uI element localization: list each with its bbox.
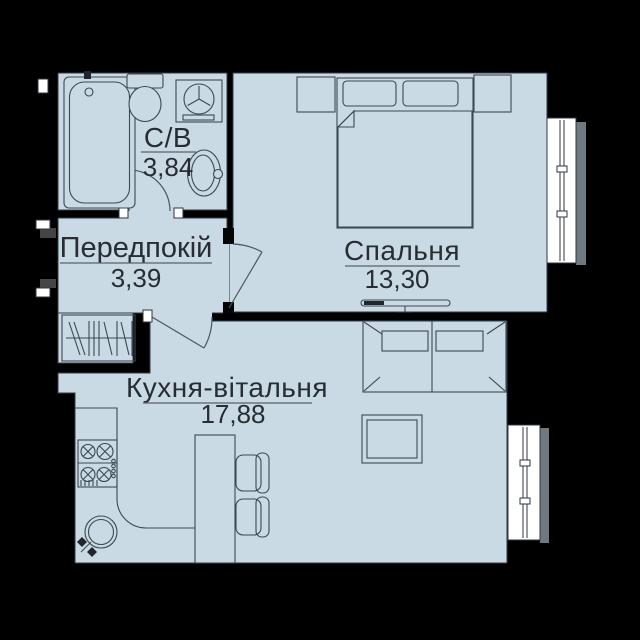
- nightstand-right-icon: [474, 75, 511, 112]
- kitchen-window-frame: [508, 425, 540, 540]
- floor-plan: С/В 3,84 Передпокій 3,39 Спальня 13,30 К…: [0, 0, 640, 640]
- room-area-hallway: 3,39: [111, 263, 162, 293]
- room-label-bedroom: Спальня: [344, 235, 460, 266]
- kitchen-window-shadow: [540, 428, 549, 543]
- room-area-bedroom: 13,30: [364, 264, 429, 294]
- bedroom-window-sash: [557, 211, 567, 217]
- bathroom-door-post-right: [174, 208, 183, 218]
- room-label-hallway: Передпокій: [60, 232, 213, 264]
- bedroom-window-frame: [547, 118, 576, 263]
- bathroom-door-post-left: [119, 208, 128, 218]
- bathtub-tap: [84, 71, 91, 79]
- room-area-kitchen-living: 17,88: [200, 399, 265, 429]
- room-area-bathroom: 3,84: [143, 152, 194, 182]
- coffee-table-icon: [362, 415, 422, 463]
- bedroom-door-post-top: [223, 228, 234, 244]
- kitchen-door-gap: [152, 311, 212, 322]
- entrance-post-bottom: [36, 288, 50, 297]
- bed-icon: [337, 78, 473, 228]
- kitchen-window-sash: [520, 498, 530, 504]
- bathtub-icon: [64, 71, 135, 208]
- room-label-bathroom: С/В: [144, 122, 192, 153]
- sofa-icon: [363, 321, 506, 392]
- kitchen-door-post-left: [143, 310, 152, 322]
- entrance-post-top: [36, 220, 50, 229]
- kitchen-window: [508, 425, 549, 543]
- kitchen-window-sash: [520, 460, 530, 466]
- nightstand-left-icon: [297, 77, 335, 112]
- toilet-icon: [127, 74, 163, 122]
- pillow-icon: [403, 81, 458, 106]
- pillow-icon: [343, 81, 396, 106]
- bedroom-door-post-bottom: [223, 302, 234, 314]
- floor-plan-canvas: С/В 3,84 Передпокій 3,39 Спальня 13,30 К…: [0, 0, 640, 640]
- bathroom-door-gap: [127, 209, 175, 219]
- entrance-door: [36, 79, 56, 297]
- entrance-shade-bottom: [40, 279, 56, 288]
- bedroom-window: [547, 118, 586, 265]
- wall-vent-tick: [38, 79, 48, 93]
- sofa-cushion: [436, 331, 483, 351]
- bedroom-window-sash: [557, 166, 567, 172]
- bedroom-window-shadow: [576, 122, 586, 265]
- sofa-cushion: [382, 331, 428, 351]
- washing-machine-icon: [176, 80, 222, 122]
